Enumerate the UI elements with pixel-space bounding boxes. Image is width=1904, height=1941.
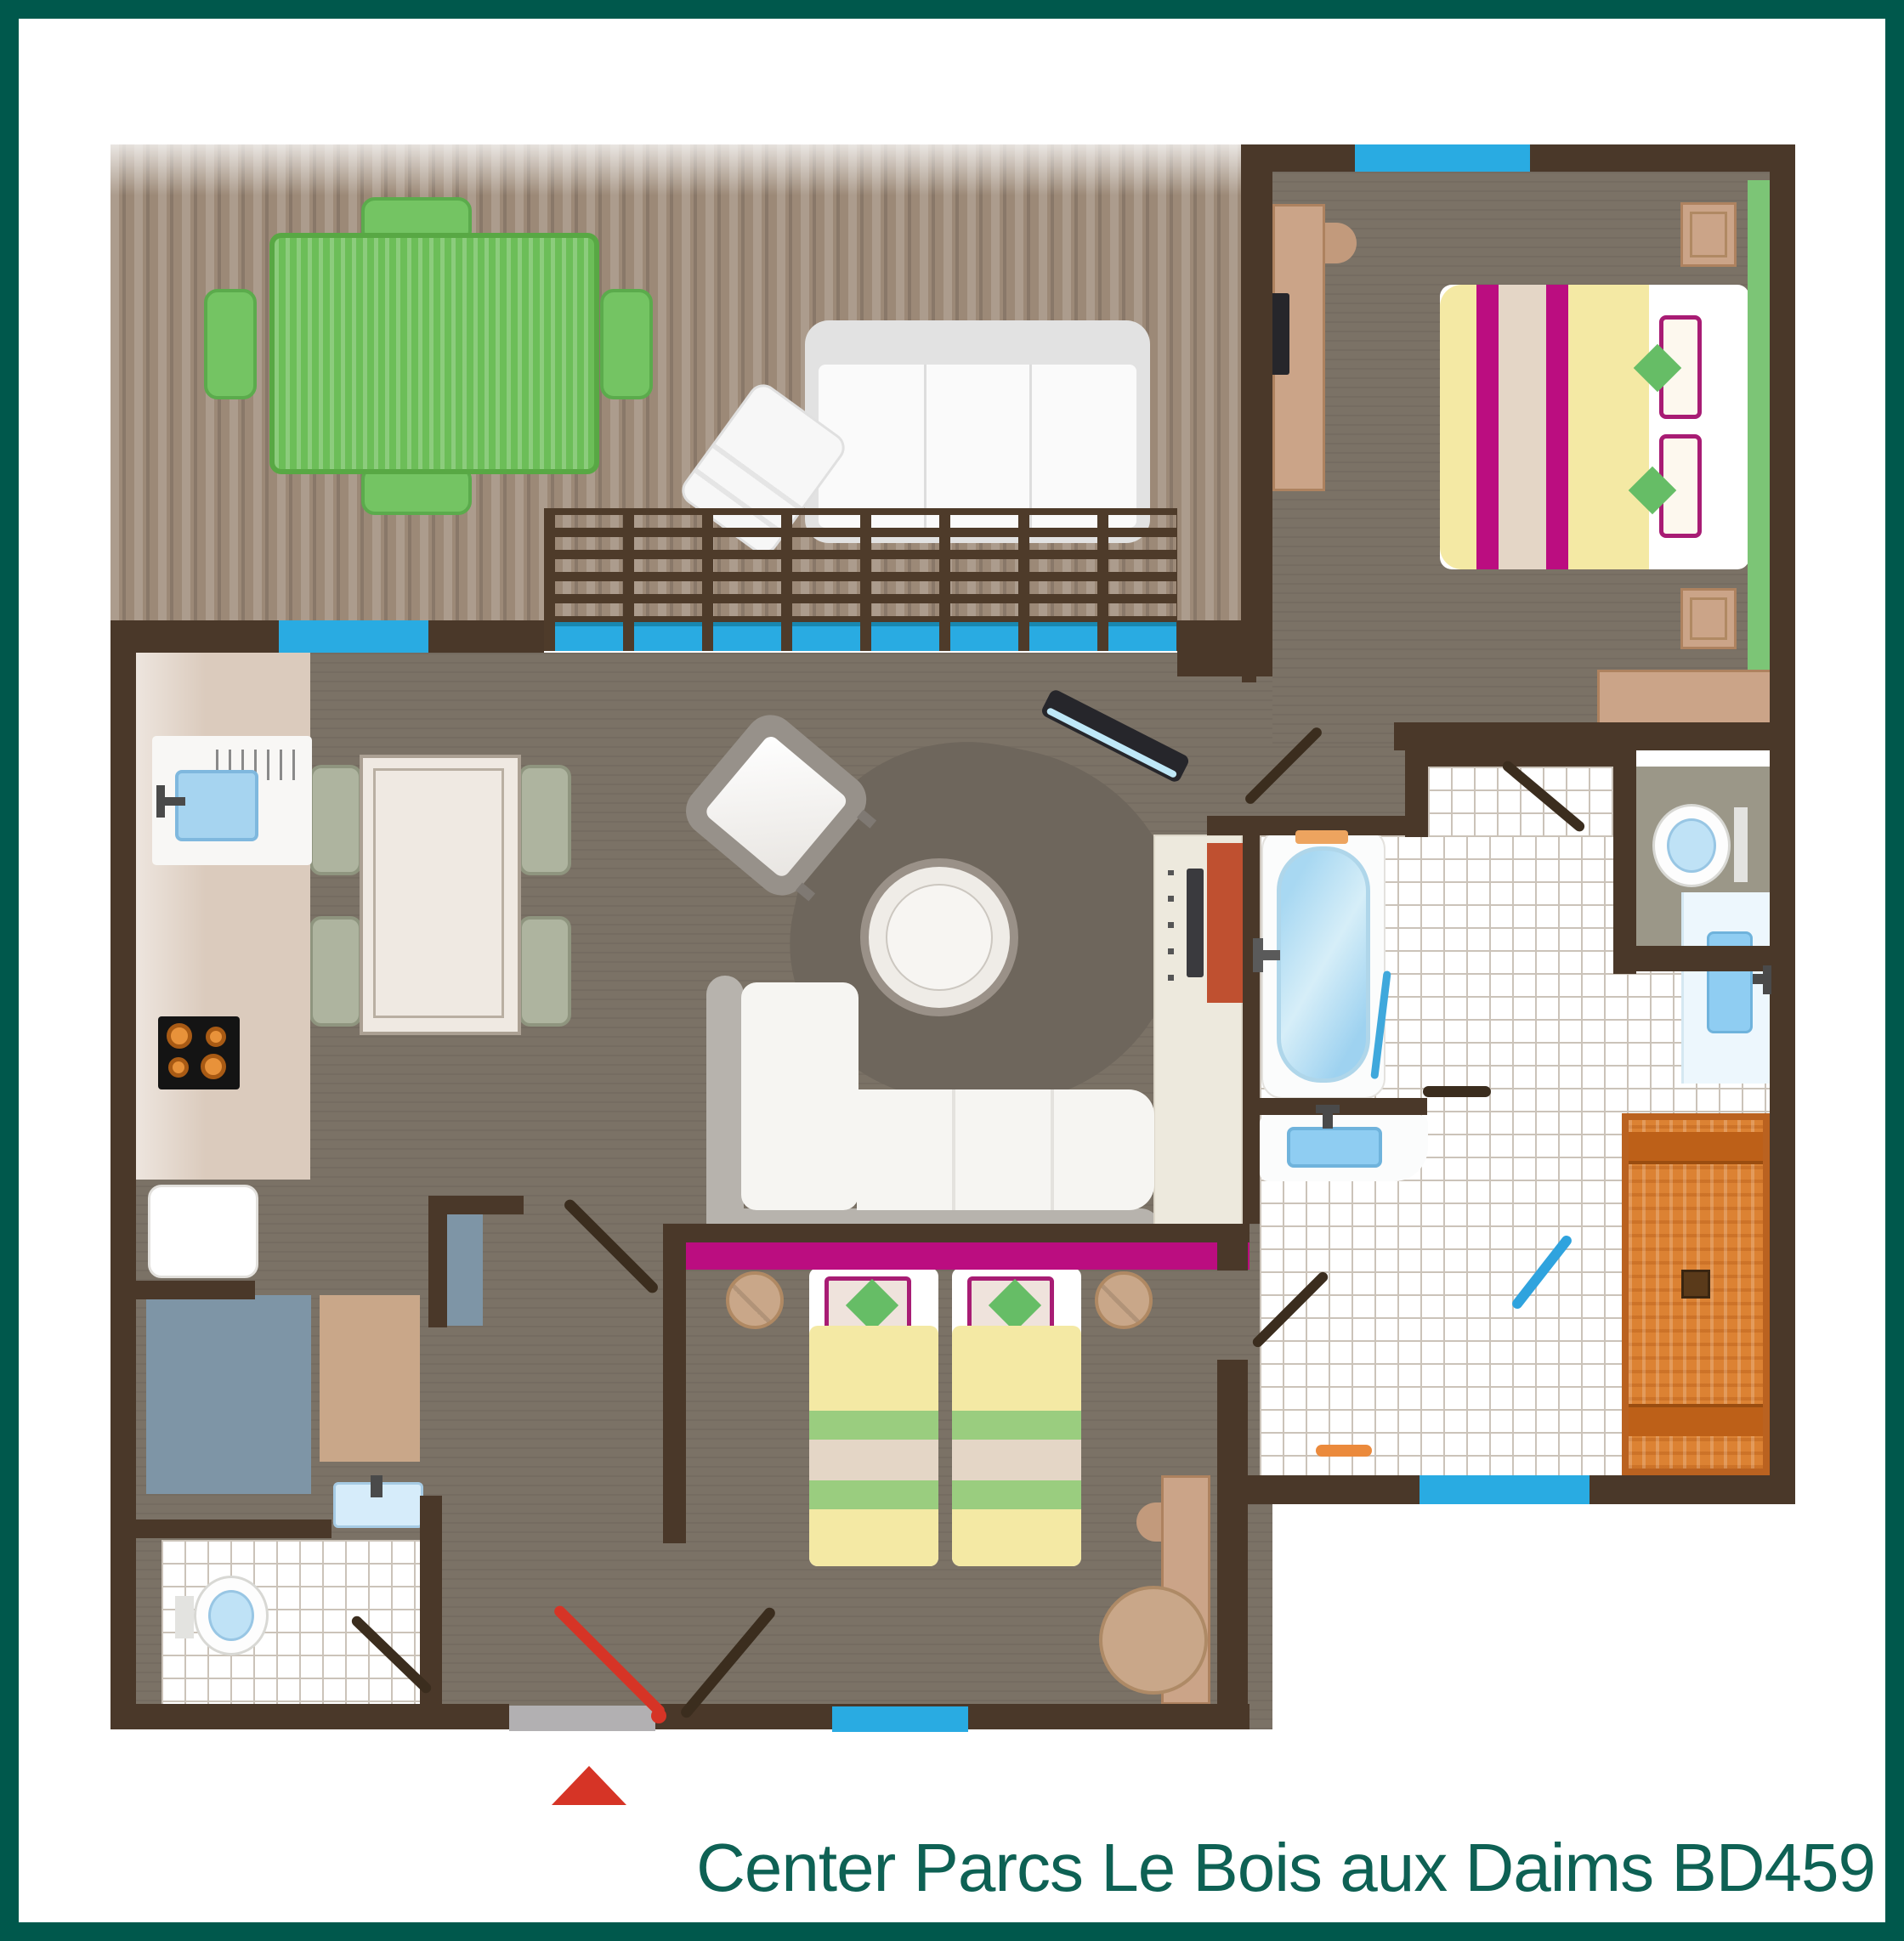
dining-chair-1 xyxy=(309,765,362,875)
hob-burner-1 xyxy=(167,1023,192,1049)
kids-bed-right-stripe-1 xyxy=(952,1411,1081,1440)
kitchen-hob xyxy=(158,1016,240,1089)
floor-plan xyxy=(0,0,1904,1941)
plan-caption: Center Parcs Le Bois aux Daims BD459 xyxy=(696,1829,1875,1907)
terrace-deck-light-fade xyxy=(110,144,1241,195)
nightstand-bottom xyxy=(1680,588,1737,649)
round-coffee-table xyxy=(860,858,1018,1016)
kitchen-counter xyxy=(136,653,310,1180)
dining-chair-3 xyxy=(309,916,362,1027)
wall-bedroom-door-jamb xyxy=(1242,642,1256,682)
hob-burner-2 xyxy=(206,1027,226,1047)
entrance-doormat xyxy=(509,1706,655,1731)
wall-east-outer xyxy=(1770,144,1795,1504)
kitchen-faucet-handle xyxy=(156,785,165,818)
wall-wc-east xyxy=(420,1496,442,1729)
wc-toilet-bowl-inner xyxy=(208,1590,254,1641)
bathtub-partition-door xyxy=(1423,1086,1491,1097)
bedroom-north-window xyxy=(1355,144,1530,172)
dining-table-inner-line xyxy=(373,768,504,1018)
kids-bed-left-stripe-2 xyxy=(809,1440,938,1480)
sauna-stove xyxy=(1681,1270,1710,1299)
dining-table xyxy=(360,755,521,1035)
bathroom-sink-tap-bar xyxy=(1316,1105,1340,1113)
bathroom-sink-basin xyxy=(1287,1127,1382,1168)
entrance-arrow xyxy=(552,1766,626,1805)
nightstand-top-inner xyxy=(1690,212,1727,257)
wall-bath-west xyxy=(1243,835,1260,1224)
outdoor-sofa-seat xyxy=(819,365,1136,528)
dining-chair-4 xyxy=(518,916,571,1027)
garden-chair-right xyxy=(600,289,653,399)
terrace-slatted-screen xyxy=(544,508,1177,653)
tv-console-red-panel xyxy=(1207,843,1243,1003)
kids-bed-left xyxy=(809,1268,938,1566)
hob-burner-3 xyxy=(168,1057,189,1078)
garden-chair-left xyxy=(204,289,257,399)
kids-bed-right-stripe-2 xyxy=(952,1440,1081,1480)
screen-posts xyxy=(544,508,1177,651)
corner-sofa-seat xyxy=(857,1089,1154,1210)
wall-toilet-room-south xyxy=(1613,946,1770,971)
kids-stool-right xyxy=(1095,1271,1153,1329)
kids-bed-left-stripe-3 xyxy=(809,1480,938,1509)
bed-stripe-beige xyxy=(1499,285,1546,569)
wall-bedroom-west xyxy=(1241,144,1272,642)
coffee-table-inner xyxy=(886,884,993,991)
kids-bed-right xyxy=(952,1268,1081,1566)
entry-door-hinge xyxy=(651,1708,666,1723)
sauna-bench-bottom xyxy=(1629,1404,1763,1436)
wc-hand-basin-tap xyxy=(371,1475,382,1497)
storage-cupboard xyxy=(146,1295,311,1494)
hob-burner-4 xyxy=(201,1054,226,1079)
wall-kids-north xyxy=(663,1224,1249,1242)
kids-room-accent-wall xyxy=(676,1242,1249,1270)
toilet-room-toilet-inner xyxy=(1667,818,1716,873)
bed-stripe-magenta-2 xyxy=(1546,285,1568,569)
kids-stool-left xyxy=(726,1271,784,1329)
bathtub xyxy=(1277,846,1370,1083)
corner-sofa-back-left xyxy=(706,976,744,1248)
wall-toilet-room-west xyxy=(1613,746,1636,974)
double-bed xyxy=(1440,285,1749,569)
kitchen-sink-basin xyxy=(175,770,258,841)
wall-kids-east-lower xyxy=(1217,1360,1248,1729)
wc-toilet-bowl xyxy=(194,1576,269,1655)
wc-toilet-tank xyxy=(175,1596,194,1638)
kitchen-appliance xyxy=(148,1185,258,1278)
slate-door-panel xyxy=(443,1210,483,1326)
wall-south-left xyxy=(110,1704,509,1729)
terrace-wall-window xyxy=(279,620,428,653)
bathtub-faucet-handle xyxy=(1253,938,1263,972)
nightstand-top xyxy=(1680,202,1737,267)
green-garden-table xyxy=(269,233,599,474)
dining-chair-2 xyxy=(518,765,571,875)
bathtub-shelf xyxy=(1295,830,1348,844)
storage-mat xyxy=(320,1295,420,1462)
kids-bed-left-stripe-1 xyxy=(809,1411,938,1440)
kids-bed-right-stripe-3 xyxy=(952,1480,1081,1509)
wall-hall-corner-v xyxy=(428,1196,447,1327)
wall-kids-west xyxy=(663,1242,686,1543)
bathroom-orange-mat xyxy=(1316,1445,1372,1457)
toilet-room-toilet-bowl xyxy=(1652,804,1731,887)
kids-room-south-window xyxy=(832,1706,968,1732)
bedroom-green-runner xyxy=(1748,180,1771,678)
wall-closet-top xyxy=(136,1281,255,1299)
console-candles xyxy=(1168,870,1174,981)
nightstand-bottom-inner xyxy=(1690,597,1727,640)
kids-beanbag xyxy=(1099,1586,1208,1695)
toilet-room-toilet-tank xyxy=(1734,807,1748,882)
living-room-tv xyxy=(1187,869,1204,977)
corner-sofa-chaise xyxy=(741,982,858,1210)
wall-west-outer xyxy=(110,620,136,1729)
bed-stripe-magenta-1 xyxy=(1476,285,1499,569)
wall-vanity-tap-handle xyxy=(1763,965,1771,994)
sauna-bench-top xyxy=(1629,1132,1763,1164)
bathroom-south-window xyxy=(1419,1475,1589,1504)
wall-wc-north xyxy=(136,1519,331,1538)
